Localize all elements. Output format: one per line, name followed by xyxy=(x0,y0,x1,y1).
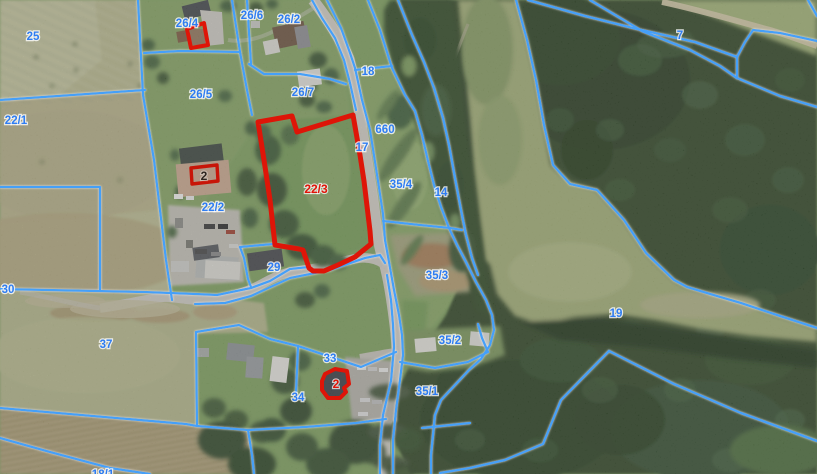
svg-text:35/2: 35/2 xyxy=(439,335,461,347)
svg-text:22/3: 22/3 xyxy=(304,182,328,196)
svg-text:29: 29 xyxy=(268,262,281,274)
svg-text:22/2: 22/2 xyxy=(202,202,224,214)
svg-text:26/2: 26/2 xyxy=(278,14,300,26)
svg-text:26/6: 26/6 xyxy=(241,10,263,22)
svg-text:2: 2 xyxy=(201,169,208,183)
svg-text:660: 660 xyxy=(375,124,394,136)
svg-text:26/5: 26/5 xyxy=(190,89,213,101)
svg-text:26/7: 26/7 xyxy=(292,87,314,99)
svg-text:35/3: 35/3 xyxy=(426,270,448,282)
svg-text:7: 7 xyxy=(677,30,683,42)
svg-text:34: 34 xyxy=(292,392,305,404)
svg-text:30: 30 xyxy=(2,284,15,296)
svg-text:18: 18 xyxy=(362,66,375,78)
svg-text:14: 14 xyxy=(435,187,448,199)
svg-text:35/4: 35/4 xyxy=(390,179,413,191)
svg-text:18/1: 18/1 xyxy=(92,469,115,474)
svg-text:37: 37 xyxy=(100,339,113,351)
svg-text:35/1: 35/1 xyxy=(416,386,439,398)
svg-text:22/1: 22/1 xyxy=(5,115,28,127)
svg-text:33: 33 xyxy=(324,353,337,365)
svg-text:25: 25 xyxy=(27,31,40,43)
svg-text:17: 17 xyxy=(356,142,369,154)
svg-text:2: 2 xyxy=(333,377,340,391)
svg-text:26/4: 26/4 xyxy=(176,18,199,30)
svg-text:19: 19 xyxy=(610,308,623,320)
